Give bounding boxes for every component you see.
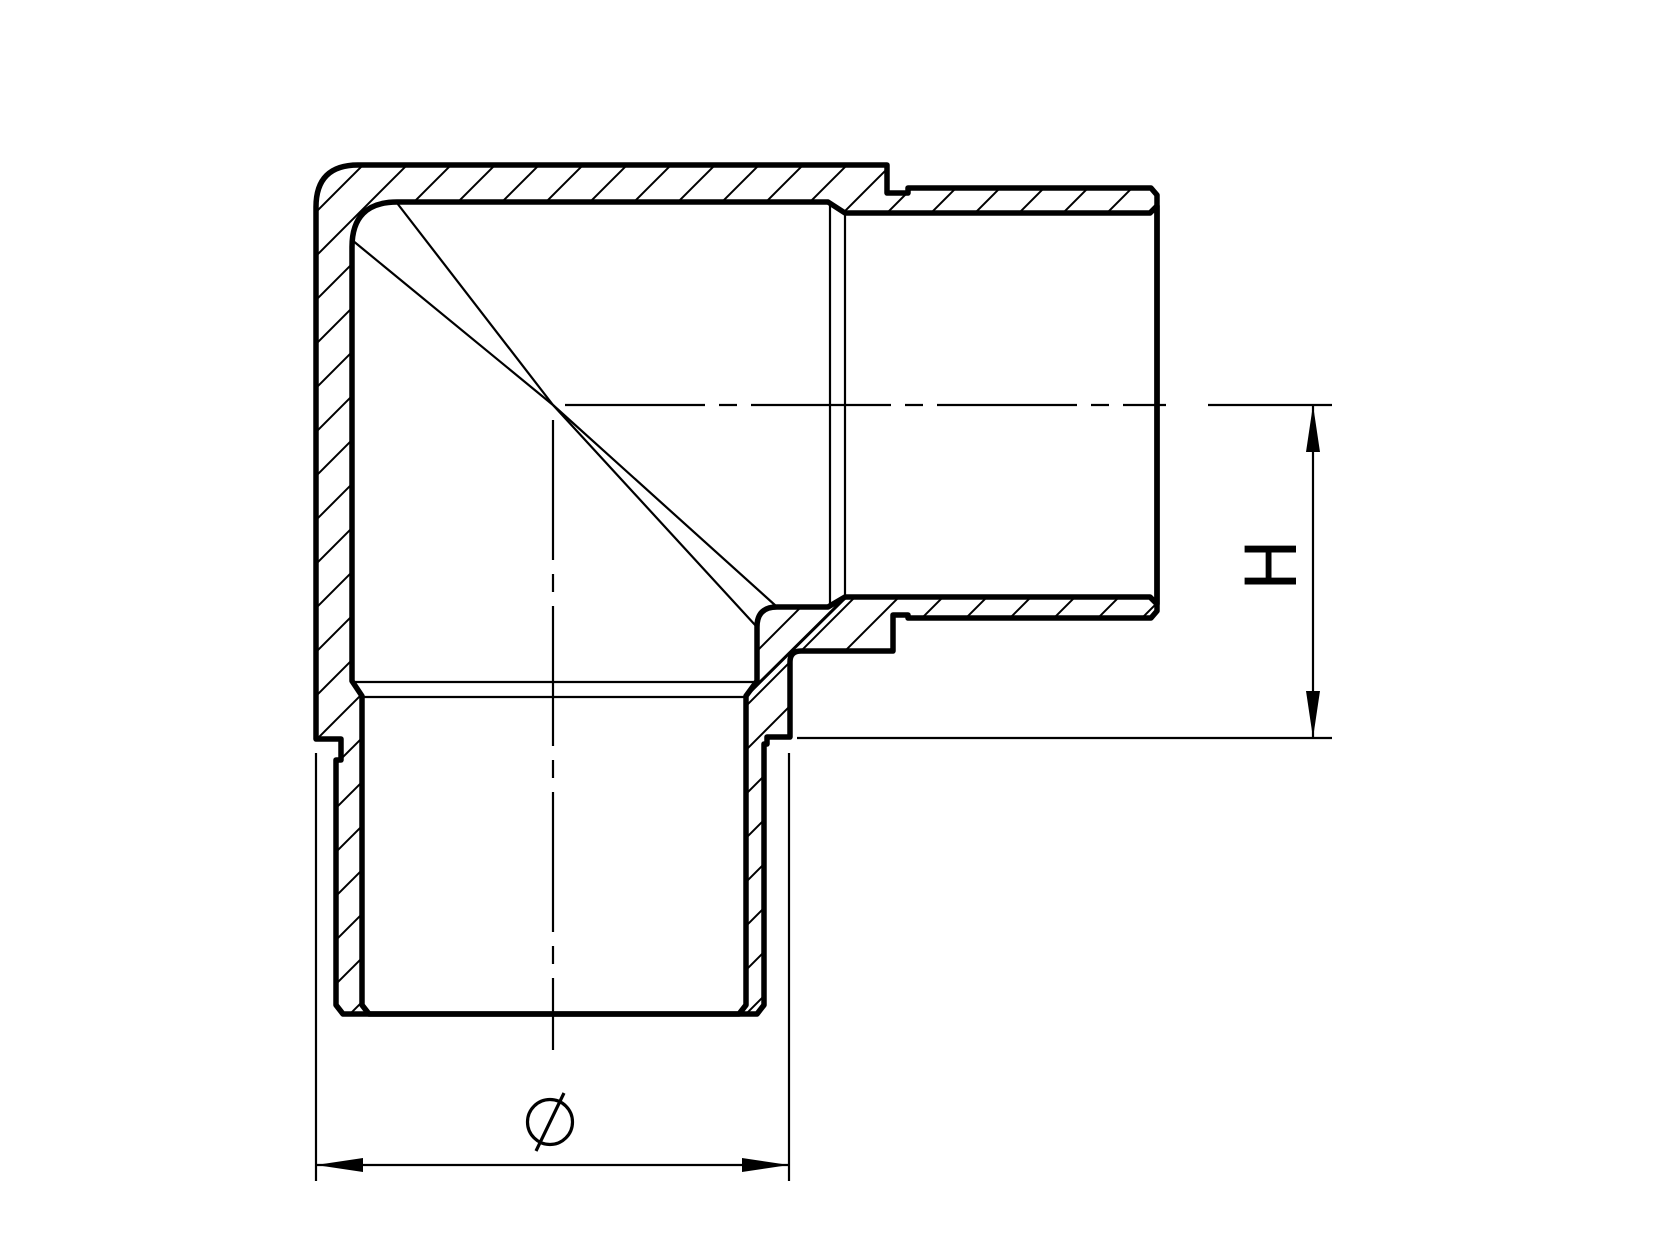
miter-line-lower-right-b — [553, 405, 776, 606]
miter-line-upper-left-a — [352, 240, 553, 405]
diameter-symbol — [528, 1093, 573, 1151]
diameter-arrow-right — [742, 1158, 789, 1172]
miter-line-upper-left-b — [397, 203, 553, 405]
drawing-canvas: H — [0, 0, 1680, 1260]
diameter-arrow-left — [316, 1158, 363, 1172]
section-hatching — [316, 165, 1157, 1014]
centerlines — [553, 405, 1166, 1050]
height-label: H — [1231, 539, 1313, 592]
elbow-fitting-section-drawing: H — [0, 0, 1680, 1260]
miter-line-lower-right-a — [553, 405, 756, 626]
outer-contour — [316, 165, 1157, 1014]
height-arrow-down — [1306, 691, 1320, 738]
dimension-height: H — [797, 405, 1332, 738]
height-arrow-up — [1306, 405, 1320, 452]
